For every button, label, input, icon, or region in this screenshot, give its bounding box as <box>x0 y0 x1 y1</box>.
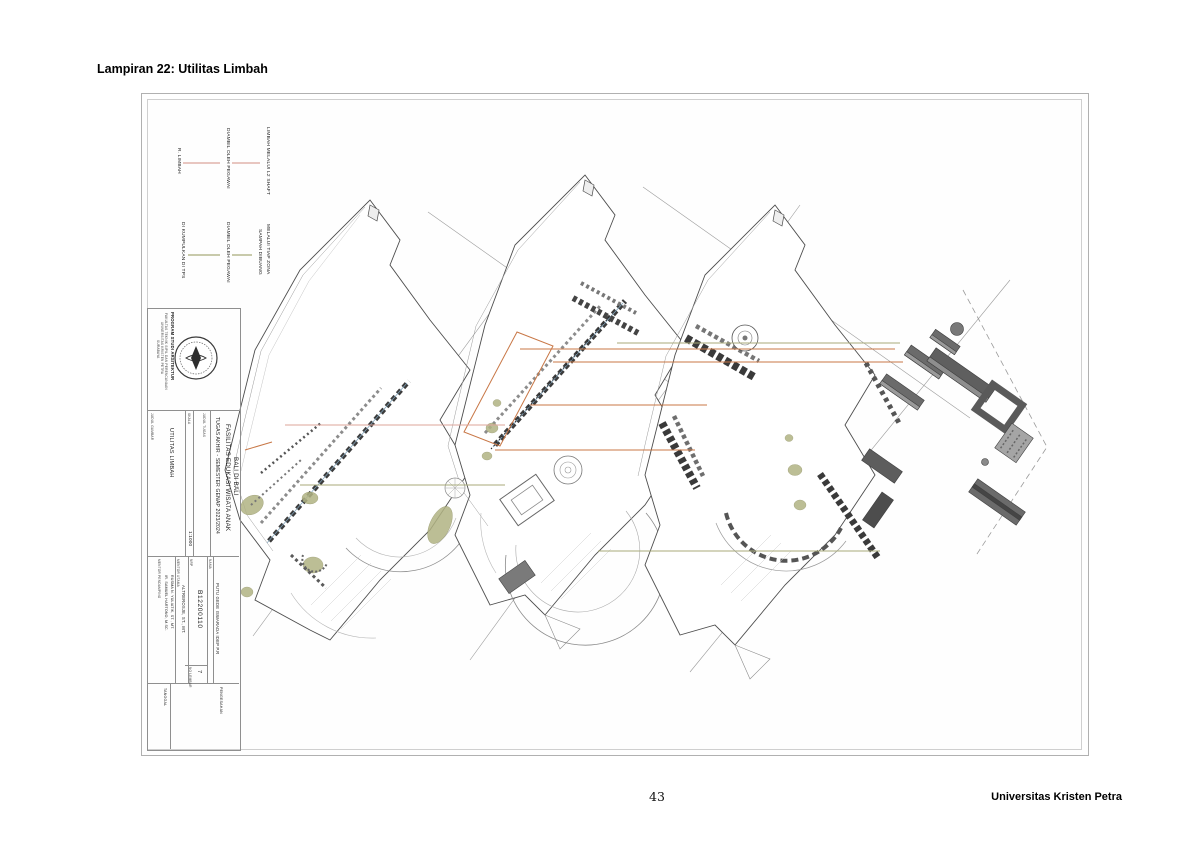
tb-nrp-label: NRP <box>189 559 192 566</box>
tb-sheet-number: 7 <box>195 670 201 673</box>
legend-sampah-source-line2: MELALUI TIAP ZONA <box>264 224 269 274</box>
legend-sampah-source-line1: SAMPAH DIBUANG <box>256 229 261 275</box>
axonometric-site-plans <box>141 93 1087 754</box>
tb-judul-tugas-label: JUDUL TUGAS <box>202 413 205 437</box>
tb-institution-city: SURABAYA <box>156 340 159 359</box>
site-plan-middle <box>445 175 685 649</box>
tb-divider <box>188 556 189 683</box>
tb-student-id: B12200110 <box>195 590 202 629</box>
tb-scale-value: 1:1000 <box>187 531 192 546</box>
tb-divider <box>207 556 208 683</box>
document-page: Lampiran 22: Utilitas Limbah <box>0 0 1193 843</box>
tb-project-title-line2: BALI DI BALI <box>232 457 238 496</box>
tb-divider <box>170 683 171 749</box>
tb-institution-university: UNIVERSITAS KRISTEN PETRA <box>160 322 163 374</box>
appendix-heading: Lampiran 22: Utilitas Limbah <box>97 62 268 76</box>
tb-pengesahan-label: PENGESAHAN <box>218 687 222 714</box>
tb-tanggal-label: TANGGAL <box>162 688 166 706</box>
tb-skala-label: SKALA <box>187 413 190 424</box>
tb-divider <box>147 556 239 557</box>
tb-divider <box>193 410 194 556</box>
legend-key-lines <box>183 163 260 255</box>
tb-pembimbing-name: ALTREROSJE, ST., MT. <box>181 585 185 634</box>
tb-no-lembar-label: NO LEMBAR <box>188 667 191 688</box>
tb-nama-label: NAMA <box>208 559 211 569</box>
legend-limbah-middle: DIAMBIL OLEH PEGAWAI <box>224 128 229 189</box>
legend-limbah-room: R. LIMBAH <box>175 148 180 174</box>
tb-pembimbing-label: MENTOR UTAMA <box>176 559 179 587</box>
tb-divider <box>185 410 186 556</box>
tb-project-title-line1: FASILITAS EDUKASI WISATA ANAK <box>224 424 230 531</box>
tb-pendamping-name1: IR. SAMUEL HARTONO, M.SC. <box>163 575 167 631</box>
page-number: 43 <box>640 789 674 804</box>
tb-institution-name: PROGRAM STUDI ARSITEKTUR <box>170 312 174 380</box>
university-seal-logo <box>172 334 220 382</box>
tb-divider <box>147 683 239 684</box>
tb-pendamping-name2: RUSMA N. YULIATIK, ST., MT. <box>169 575 173 629</box>
tb-drawing-title: UTILITAS LIMBAH <box>167 428 173 478</box>
tb-institution-faculty: FAKULTAS TEKNIK SIPIL DAN PERENCANAAN <box>164 313 167 390</box>
legend-sampah-middle: DIAMBIL OLEH PEGAWAI <box>224 222 229 283</box>
footer-institution: Universitas Kristen Petra <box>980 791 1122 803</box>
legend-sampah-destination: DI KUMPULKAN DI TPS <box>179 222 184 279</box>
tb-student-name: PUTU GEDE ISWARADA IDEP P.R <box>215 583 219 654</box>
tb-course-title: TUGAS AKHIR - SEMESTER GENAP 2023/2024 <box>214 417 219 534</box>
exploded-building-blocks <box>862 323 1034 528</box>
tb-judul-gambar-label: JUDUL GAMBAR <box>150 413 153 440</box>
tb-pendamping-label: MENTOR PENDAMPING <box>157 559 160 598</box>
site-plan-right <box>638 205 899 679</box>
tb-divider <box>210 410 211 556</box>
legend-limbah-source: LIMBAH MELALUI L2 SHAFT <box>264 127 269 195</box>
